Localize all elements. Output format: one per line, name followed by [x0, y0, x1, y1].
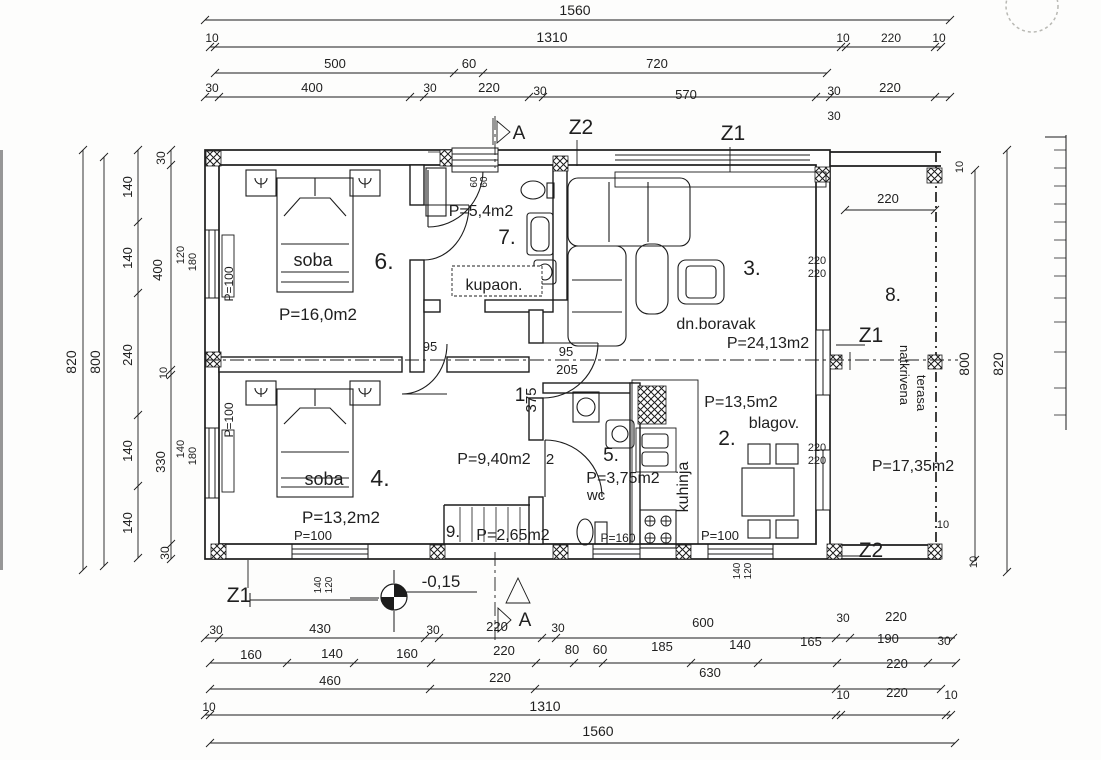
win-blagov-p100: P=100 — [701, 528, 739, 543]
win-left-140: 140 — [175, 440, 187, 458]
dim-left-240: 240 — [120, 344, 135, 366]
section-a-top: A — [513, 123, 526, 144]
dim-220-liv-b: 220 — [808, 268, 826, 280]
room6-number: 6. — [374, 248, 393, 274]
dim-top-30-5: 30 — [827, 109, 841, 123]
dim-bot1-30d: 30 — [836, 611, 850, 625]
dim-bot2-160a: 160 — [240, 647, 262, 662]
dim-205: 205 — [556, 362, 578, 377]
dim-bot1-600: 600 — [692, 615, 714, 630]
win-left-120: 120 — [175, 246, 187, 264]
room7-number: 7. — [498, 226, 516, 249]
dim-95-b: 95 — [559, 344, 573, 359]
win-blagov-120: 120 — [743, 562, 754, 579]
section-z2-right: Z2 — [859, 539, 884, 562]
room9-area: P=2,65m2 — [476, 527, 549, 544]
entr-60-b: 60 — [479, 176, 490, 188]
dim-bot1-30c: 30 — [551, 621, 565, 635]
room1-area: P=9,40m2 — [457, 451, 530, 468]
dim-bot2-80: 80 — [565, 642, 579, 657]
room6-area: P=16,0m2 — [279, 305, 357, 324]
dim-top-1560: 1560 — [559, 2, 590, 18]
dim-top-220-r: 220 — [881, 31, 901, 45]
win-room6-p100: P=100 — [222, 266, 236, 301]
dim-top-1310: 1310 — [536, 29, 567, 45]
scan-edge — [0, 150, 3, 570]
room6-name: soba — [293, 250, 333, 270]
margin-ruler — [1045, 135, 1066, 430]
room3-name: dn.boravak — [676, 316, 756, 333]
dim-left-140-4: 140 — [120, 512, 135, 534]
dim-bot3-220a: 220 — [489, 670, 511, 685]
floor-plan-scan: { "watermark": { "text": "INVESTA", "col… — [0, 0, 1101, 760]
room8-name-1: natkrivena — [897, 345, 912, 406]
plan-drawing: INVESTA — [0, 0, 1101, 760]
room4-name: soba — [304, 469, 344, 489]
dim-left-330: 330 — [153, 451, 168, 473]
dim-bot2-190: 190 — [877, 631, 899, 646]
dim-terasa-10: 10 — [937, 519, 949, 531]
win-room4-p100-l: P=100 — [222, 402, 236, 437]
win-blagov-140: 140 — [732, 562, 743, 579]
dim-left-400: 400 — [150, 259, 165, 281]
room2-area: P=13,5m2 — [704, 394, 777, 411]
dim-right-10-bot: 10 — [968, 556, 980, 568]
dim-right-820: 820 — [990, 352, 1006, 376]
room8-number: 8. — [885, 285, 901, 306]
section-z1-right: Z1 — [859, 324, 884, 347]
dim-bot4-1310: 1310 — [529, 698, 560, 714]
dim-bot2-185: 185 — [651, 639, 673, 654]
dim-bot4-10a: 10 — [202, 700, 216, 714]
dim-bot2-140a: 140 — [321, 646, 343, 661]
dim-220-din-a: 220 — [808, 442, 826, 454]
room9-number: 9. — [446, 522, 460, 541]
dim-220-din-b: 220 — [808, 455, 826, 467]
dim-220-liv-a: 220 — [808, 255, 826, 267]
room8-area: P=17,35m2 — [872, 458, 954, 475]
dim-top-30-2: 30 — [423, 81, 437, 95]
room7-area: P=5,4m2 — [449, 203, 514, 220]
room2-number: 2. — [718, 427, 736, 450]
section-z1-bottom: Z1 — [227, 584, 252, 607]
win-room4b-120: 120 — [324, 576, 335, 593]
room5-name: wc — [586, 487, 606, 504]
dim-left-30-2: 30 — [158, 546, 172, 560]
room2-name: blagov. — [749, 415, 799, 432]
dim-left-820: 820 — [63, 350, 79, 374]
room3-area: P=24,13m2 — [727, 335, 809, 352]
room5-area: P=3,75m2 — [586, 470, 659, 487]
dim-terasa-220: 220 — [877, 191, 899, 206]
dim-bot1-30b: 30 — [426, 623, 440, 637]
kitchen-name: kuhinja — [675, 462, 692, 513]
dim-right-10-top: 10 — [954, 161, 966, 173]
dim-top-30-4: 30 — [827, 84, 841, 98]
dim-top-570: 570 — [675, 87, 697, 102]
dim-bot2-60: 60 — [593, 642, 607, 657]
dim-bot1-220: 220 — [486, 619, 508, 634]
dim-bot3-220b: 220 — [886, 656, 908, 671]
dim-bot3-460: 460 — [319, 673, 341, 688]
win-wc-p160: P=160 — [600, 531, 635, 545]
room4-area: P=13,2m2 — [302, 508, 380, 527]
dim-top-400: 400 — [301, 80, 323, 95]
dim-bot3-630: 630 — [699, 665, 721, 680]
win-room4b-140: 140 — [313, 576, 324, 593]
dim-top-220-m: 220 — [478, 80, 500, 95]
dim-left-10: 10 — [158, 367, 170, 379]
dim-bot2-140b: 140 — [729, 637, 751, 652]
room1-extra-2: 2 — [546, 451, 554, 468]
dim-top-500: 500 — [324, 56, 346, 71]
dim-top-30-1: 30 — [205, 81, 219, 95]
dim-bot4-10c: 10 — [944, 688, 958, 702]
dim-95-a: 95 — [423, 339, 437, 354]
level-label: -0,15 — [422, 572, 461, 591]
dim-bot1-430: 430 — [309, 621, 331, 636]
dim-bot2-165: 165 — [800, 634, 822, 649]
section-flag-a-top — [497, 121, 510, 143]
dim-bot1-30a: 30 — [209, 623, 223, 637]
win-left-180b: 180 — [187, 447, 199, 465]
dim-top-10-l: 10 — [205, 31, 219, 45]
room8-name-2: terasa — [914, 375, 929, 412]
dim-bot2-220: 220 — [493, 643, 515, 658]
dim-top-720: 720 — [646, 56, 668, 71]
section-triangle-a-bottom — [506, 578, 530, 603]
win-left-180a: 180 — [187, 253, 199, 271]
dim-bot4-220: 220 — [886, 685, 908, 700]
dim-left-140-1: 140 — [120, 176, 135, 198]
dim-left-800: 800 — [87, 350, 103, 374]
dim-bot5-1560: 1560 — [582, 723, 613, 739]
dim-bot2-160b: 160 — [396, 646, 418, 661]
dim-bot1-220b: 220 — [885, 609, 907, 624]
dim-top-30-3: 30 — [533, 84, 547, 98]
dim-left-140-2: 140 — [120, 247, 135, 269]
win-room4-p100-b: P=100 — [294, 528, 332, 543]
room3-number: 3. — [743, 257, 761, 280]
dim-left-140-3: 140 — [120, 440, 135, 462]
dim-left-30-1: 30 — [154, 151, 168, 165]
section-z2-top: Z2 — [569, 116, 594, 139]
room5-number: 5. — [603, 445, 619, 466]
dim-right-800: 800 — [956, 352, 972, 376]
section-a-bottom: A — [519, 610, 532, 631]
room7-name: kupaon. — [466, 277, 523, 294]
dim-375: 375 — [523, 387, 540, 412]
stamp-circle — [1006, 0, 1058, 32]
dim-bot4-10b: 10 — [836, 688, 850, 702]
dim-bot2-30: 30 — [937, 634, 951, 648]
dim-top-10-r2: 10 — [932, 31, 946, 45]
dim-top-220-m2: 220 — [879, 80, 901, 95]
dim-top-60: 60 — [462, 56, 476, 71]
dim-top-10-r1: 10 — [836, 31, 850, 45]
room4-number: 4. — [370, 465, 389, 491]
section-z1-top: Z1 — [721, 122, 746, 145]
